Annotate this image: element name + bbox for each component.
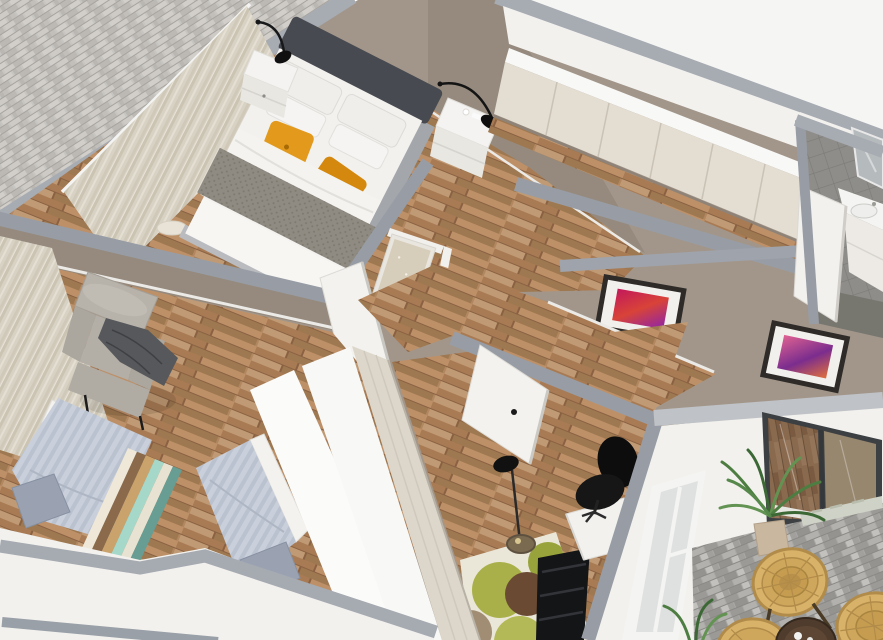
bathroom	[794, 112, 883, 338]
floor-plan-render	[0, 0, 883, 640]
floor-plan-svg	[0, 0, 883, 640]
